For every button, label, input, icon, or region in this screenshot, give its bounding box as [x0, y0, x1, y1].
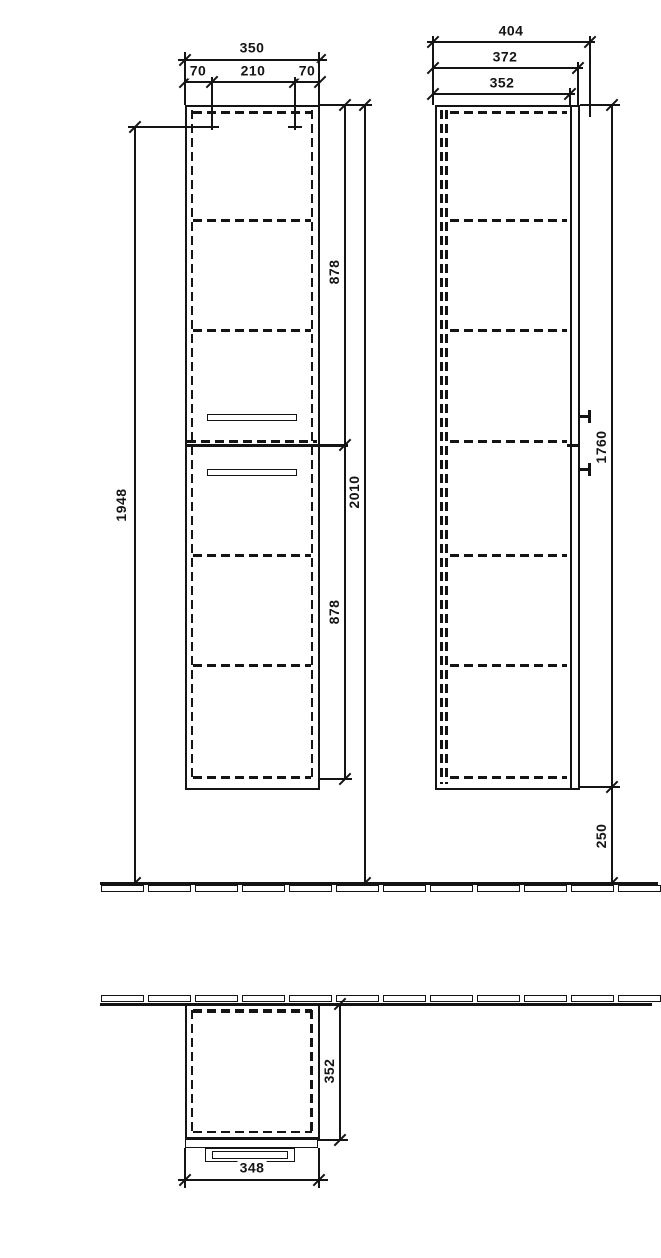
hatch-segment: [195, 995, 238, 1002]
hatch-segment: [477, 995, 520, 1002]
cabinet-technical-drawing: 350 70 210 70 1948 878 878 2010: [0, 0, 661, 1258]
hatch-segment: [242, 995, 285, 1002]
dim-line-plan-352: [339, 1004, 341, 1140]
plan-hidden-line-bottom: [193, 1131, 312, 1133]
hatch-segment: [618, 995, 661, 1002]
plan-cabinet-outline: [185, 1004, 320, 1139]
dim-label-plan-depth: 352: [321, 1057, 337, 1086]
plan-door-panel: [185, 1139, 318, 1148]
dim-line-348: [178, 1179, 328, 1181]
plan-handle-inner: [212, 1151, 288, 1159]
dim-label-plan-width: 348: [238, 1160, 267, 1176]
hatch-segment: [571, 995, 614, 1002]
plan-hidden-line-left: [191, 1010, 193, 1133]
plan-hidden-line-right: [310, 1010, 313, 1133]
hatch-segment: [524, 995, 567, 1002]
plan-hidden-line-top: [193, 1009, 312, 1013]
hatch-segment: [383, 995, 426, 1002]
hatch-segment: [101, 995, 144, 1002]
wall-hatching: [101, 995, 652, 1002]
plan-view: 352 348: [0, 0, 661, 1258]
hatch-segment: [430, 995, 473, 1002]
dim-connector: [318, 1139, 348, 1141]
hatch-segment: [148, 995, 191, 1002]
wall-line: [100, 1003, 652, 1006]
dim-connector: [320, 1003, 348, 1005]
hatch-segment: [289, 995, 332, 1002]
